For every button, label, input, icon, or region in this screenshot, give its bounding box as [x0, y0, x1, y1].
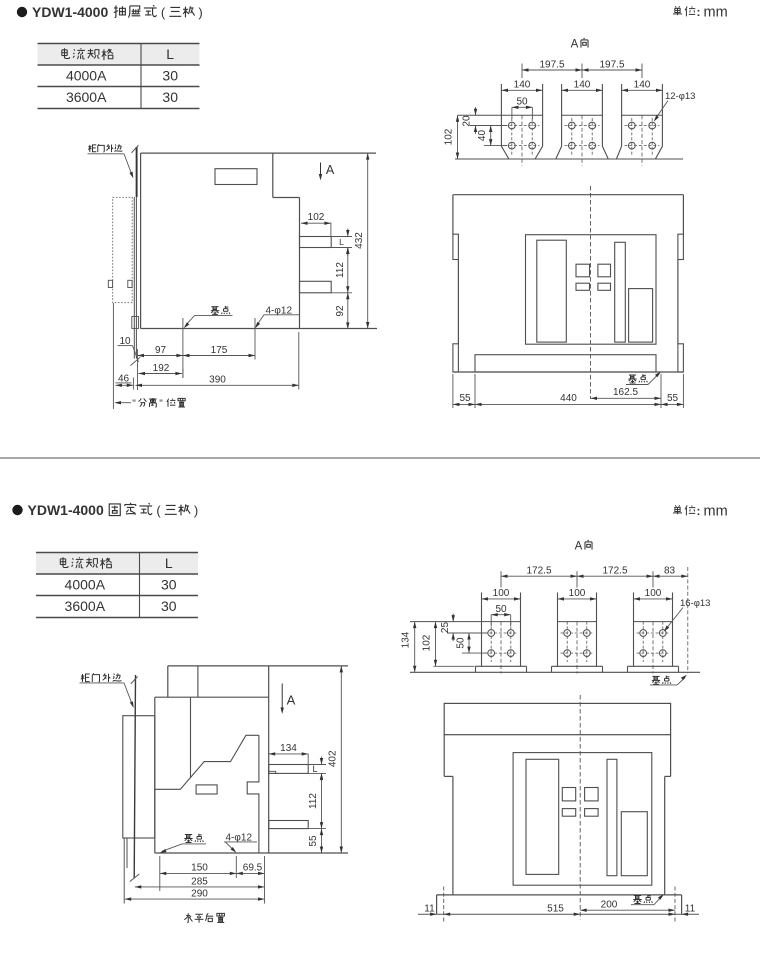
- svg-text:A: A: [571, 39, 579, 51]
- svg-text:162.5: 162.5: [613, 387, 638, 398]
- svg-text:": ": [132, 399, 136, 410]
- svg-text:175: 175: [211, 345, 228, 356]
- svg-text:): ): [194, 503, 198, 518]
- svg-text:(: (: [161, 5, 166, 20]
- svg-text:112: 112: [335, 262, 346, 278]
- svg-text:97: 97: [155, 345, 167, 356]
- svg-text:55: 55: [459, 393, 471, 404]
- svg-text:55: 55: [667, 393, 679, 404]
- svg-text:YDW1-4000: YDW1-4000: [32, 4, 108, 20]
- svg-text:": ": [159, 399, 163, 410]
- svg-text:197.5: 197.5: [599, 59, 624, 70]
- svg-text:YDW1-4000: YDW1-4000: [28, 502, 104, 518]
- svg-text:30: 30: [161, 577, 177, 593]
- svg-text:50: 50: [516, 97, 528, 108]
- svg-text:30: 30: [161, 598, 177, 614]
- svg-text:290: 290: [191, 889, 208, 900]
- svg-text:30: 30: [162, 68, 178, 84]
- svg-text:150: 150: [191, 863, 208, 874]
- svg-text:102: 102: [422, 634, 433, 651]
- svg-text:3600A: 3600A: [66, 89, 107, 105]
- svg-text:25: 25: [440, 622, 451, 634]
- svg-text:197.5: 197.5: [539, 59, 564, 70]
- svg-text:102: 102: [308, 212, 325, 223]
- svg-text:L: L: [339, 237, 344, 247]
- svg-text:): ): [198, 5, 202, 20]
- svg-text:L: L: [312, 764, 317, 774]
- svg-text:55: 55: [308, 835, 319, 847]
- svg-text:L: L: [165, 555, 173, 571]
- svg-text:432: 432: [354, 232, 365, 249]
- svg-text:L: L: [166, 46, 174, 62]
- svg-text:11: 11: [424, 904, 435, 915]
- svg-text:440: 440: [560, 393, 577, 404]
- svg-text:A: A: [575, 541, 583, 553]
- svg-text:12-φ13: 12-φ13: [665, 91, 695, 102]
- svg-text:50: 50: [456, 637, 467, 649]
- svg-text:134: 134: [401, 631, 412, 648]
- svg-text:102: 102: [444, 128, 455, 145]
- svg-text:4000A: 4000A: [65, 577, 106, 593]
- svg-text:140: 140: [514, 80, 531, 91]
- svg-text:402: 402: [328, 750, 339, 767]
- svg-text:92: 92: [335, 305, 346, 317]
- svg-text:16-φ13: 16-φ13: [680, 598, 710, 609]
- svg-text:(: (: [156, 503, 161, 518]
- svg-text:172.5: 172.5: [526, 566, 551, 577]
- svg-text:390: 390: [209, 375, 226, 386]
- svg-text:3600A: 3600A: [65, 598, 106, 614]
- svg-text:A: A: [326, 163, 335, 177]
- svg-text:30: 30: [162, 89, 178, 105]
- svg-text:112: 112: [308, 793, 319, 809]
- svg-text:50: 50: [495, 604, 507, 615]
- svg-text:100: 100: [493, 588, 510, 599]
- svg-text:A: A: [287, 693, 296, 708]
- svg-text::: :: [697, 5, 701, 19]
- svg-text:4000A: 4000A: [66, 68, 107, 84]
- svg-text:200: 200: [601, 900, 618, 911]
- svg-text:20: 20: [462, 115, 473, 127]
- svg-text:100: 100: [569, 588, 586, 599]
- svg-text:140: 140: [634, 80, 651, 91]
- svg-text:mm: mm: [704, 504, 728, 520]
- svg-text:285: 285: [191, 876, 208, 887]
- svg-text:100: 100: [645, 588, 662, 599]
- svg-text:140: 140: [574, 80, 591, 91]
- svg-text:69.5: 69.5: [243, 863, 263, 874]
- svg-text:83: 83: [664, 566, 676, 577]
- svg-text:515: 515: [547, 904, 564, 915]
- svg-text::: :: [697, 504, 701, 518]
- svg-text:134: 134: [280, 743, 297, 754]
- svg-text:172.5: 172.5: [602, 566, 627, 577]
- svg-text:192: 192: [153, 363, 170, 374]
- svg-text:mm: mm: [704, 5, 728, 21]
- svg-text:40: 40: [477, 130, 488, 142]
- svg-text:11: 11: [685, 904, 696, 915]
